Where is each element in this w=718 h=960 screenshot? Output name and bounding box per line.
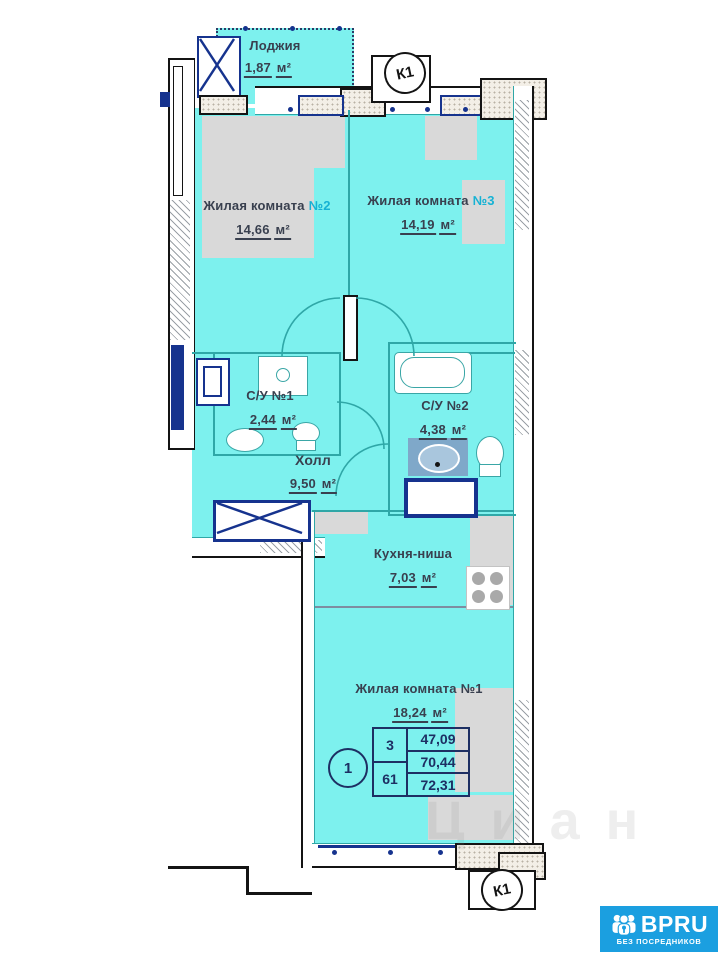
floor-plan: Лоджия 1,87 м² Жилая комната №2 14,66 м²… (0, 0, 718, 960)
left-window (173, 66, 183, 196)
furniture-zone (202, 116, 345, 168)
stove-icon (466, 566, 510, 610)
room3-area-label: 14,19 м² (400, 217, 456, 232)
loggia-label: Лоджия (249, 38, 300, 53)
washing-machine-drum (203, 366, 222, 397)
left-window-blue (171, 345, 184, 430)
right-wall-hatch (515, 350, 529, 435)
furniture-zone (312, 512, 368, 534)
bpru-logo[interactable]: BPRU БЕЗ ПОСРЕДНИКОВ (600, 906, 718, 952)
unit-number-badge: 1 (328, 748, 368, 788)
window-dot (290, 26, 295, 31)
room-divider (348, 110, 350, 298)
window-dot (332, 850, 337, 855)
logo-tagline: БЕЗ ПОСРЕДНИКОВ (617, 937, 702, 946)
su2-area-label: 4,38 м² (419, 422, 467, 437)
room2-area-label: 14,66 м² (235, 222, 291, 237)
stove-burner (490, 590, 503, 603)
wall-stub (343, 295, 358, 361)
kitchen-label: Кухня-ниша (374, 546, 452, 561)
room1-area-label: 18,24 м² (392, 705, 448, 720)
sink-icon (418, 444, 460, 473)
bathtub-inner (400, 357, 465, 388)
sink-icon (226, 428, 264, 452)
furniture-zone (425, 116, 477, 160)
toilet-tank (296, 440, 316, 451)
shaft-box (213, 500, 311, 542)
room3-label: Жилая комната №3 (367, 193, 494, 208)
apartment-info-table: 3 61 47,09 70,44 72,31 (372, 727, 470, 797)
stove-burner (490, 572, 503, 585)
stub-wall (246, 892, 312, 895)
hall-area-label: 9,50 м² (289, 476, 337, 491)
cabinet-icon (404, 478, 478, 518)
hall-label: Холл (295, 452, 331, 468)
room1-label: Жилая комната №1 (355, 681, 482, 696)
su1-area-label: 2,44 м² (249, 412, 297, 427)
room2-label: Жилая комната №2 (203, 198, 330, 213)
window-dot (337, 26, 342, 31)
window-sill (298, 95, 344, 116)
window-dot (388, 850, 393, 855)
rooms-count: 3 (374, 729, 406, 763)
window-dot (463, 107, 468, 112)
shower-drain (276, 368, 290, 382)
right-wall-hatch (515, 100, 529, 230)
su1-label: С/У №1 (246, 388, 294, 403)
sink-drain-dot (435, 462, 440, 467)
stub-wall (168, 866, 248, 869)
cian-watermark: Циан (425, 790, 664, 852)
unit-index: 61 (374, 763, 406, 795)
furniture-zone (202, 168, 314, 258)
people-key-icon (610, 913, 638, 936)
lower-left-wall (301, 512, 315, 868)
loggia-glazing-box (197, 36, 241, 98)
toilet-tank (479, 464, 501, 477)
kitchen-area-label: 7,03 м² (389, 570, 437, 585)
loggia-area-label: 1,87 м² (244, 60, 292, 75)
loggia-sill (199, 95, 248, 115)
living-area-value: 47,09 (408, 729, 468, 752)
left-wall-hatch (170, 200, 190, 340)
wall-detail (160, 92, 170, 107)
window-dot (390, 107, 395, 112)
stove-burner (472, 572, 485, 585)
logo-brand-text: BPRU (641, 913, 708, 936)
window-dot (425, 107, 430, 112)
window-dot (243, 26, 248, 31)
stub-wall (246, 866, 249, 895)
window-dot (288, 107, 293, 112)
stove-burner (472, 590, 485, 603)
su2-label: С/У №2 (421, 398, 469, 413)
area-value: 70,44 (408, 752, 468, 775)
furniture-zone (462, 180, 505, 244)
